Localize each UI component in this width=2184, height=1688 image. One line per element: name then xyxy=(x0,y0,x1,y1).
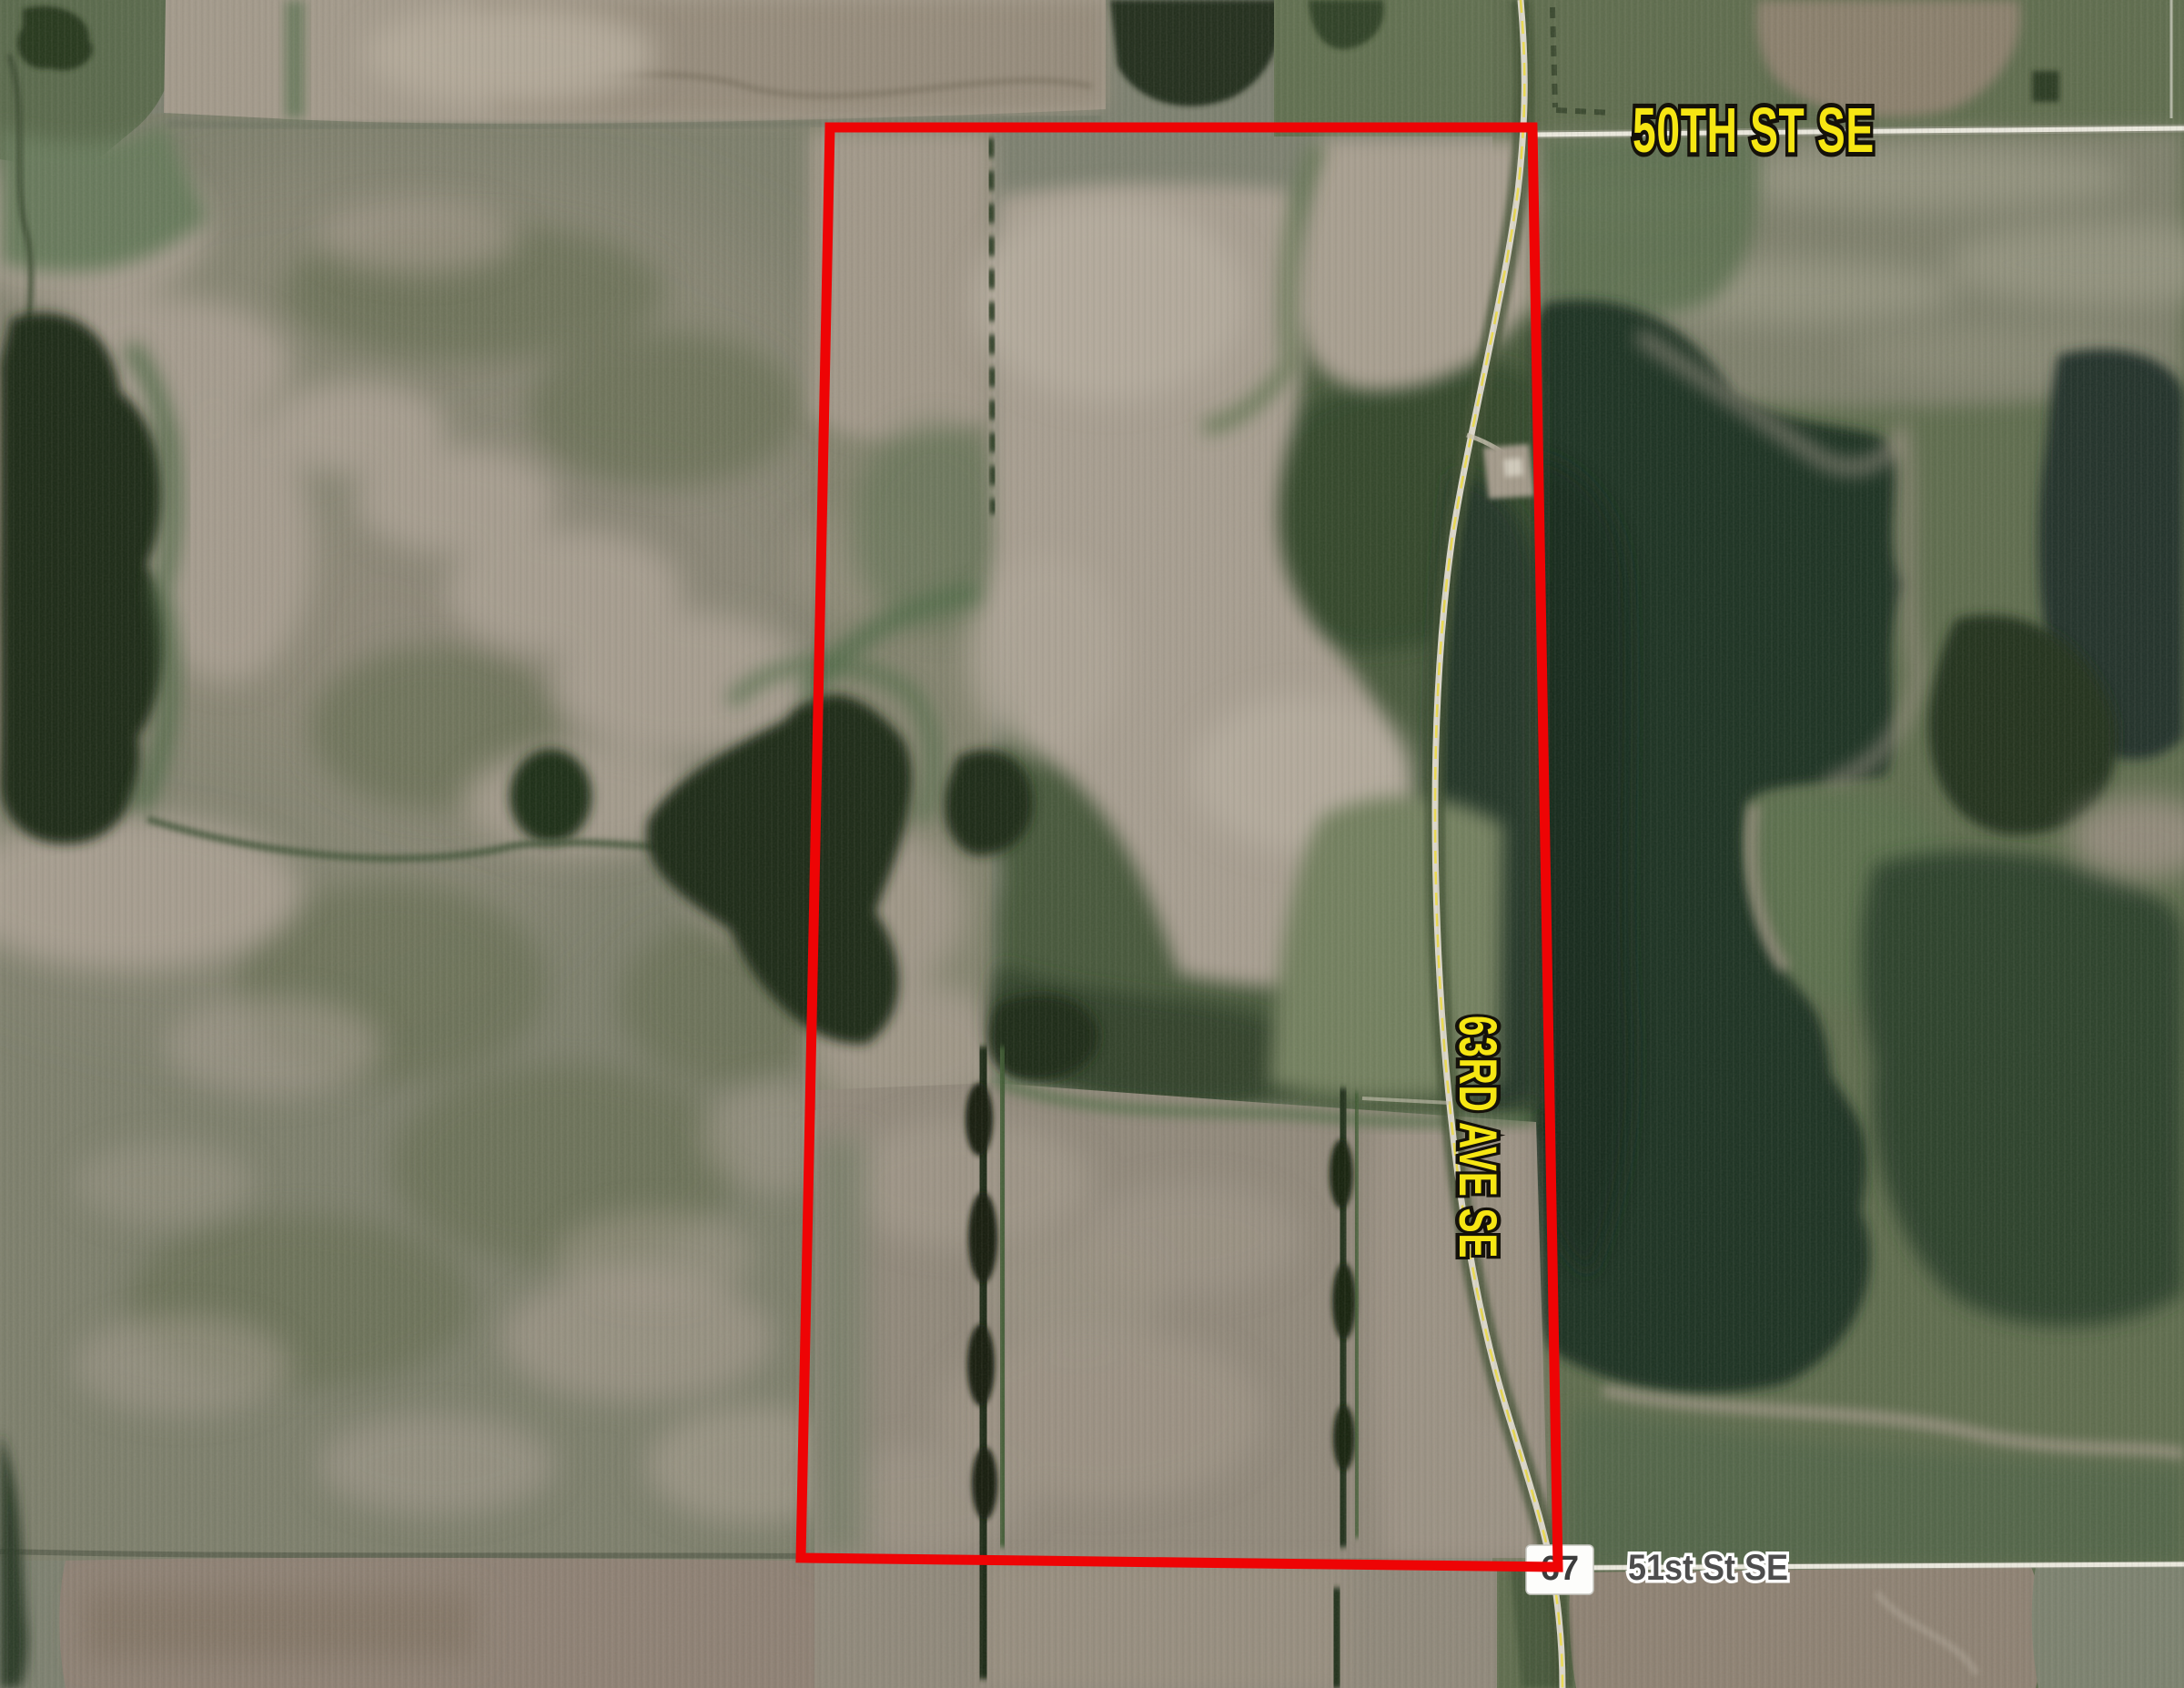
svg-text:63RD AVE SE: 63RD AVE SE xyxy=(1448,1016,1507,1258)
svg-text:51st St SE: 51st St SE xyxy=(1628,1548,1788,1588)
svg-text:50TH ST SE: 50TH ST SE xyxy=(1633,94,1875,166)
